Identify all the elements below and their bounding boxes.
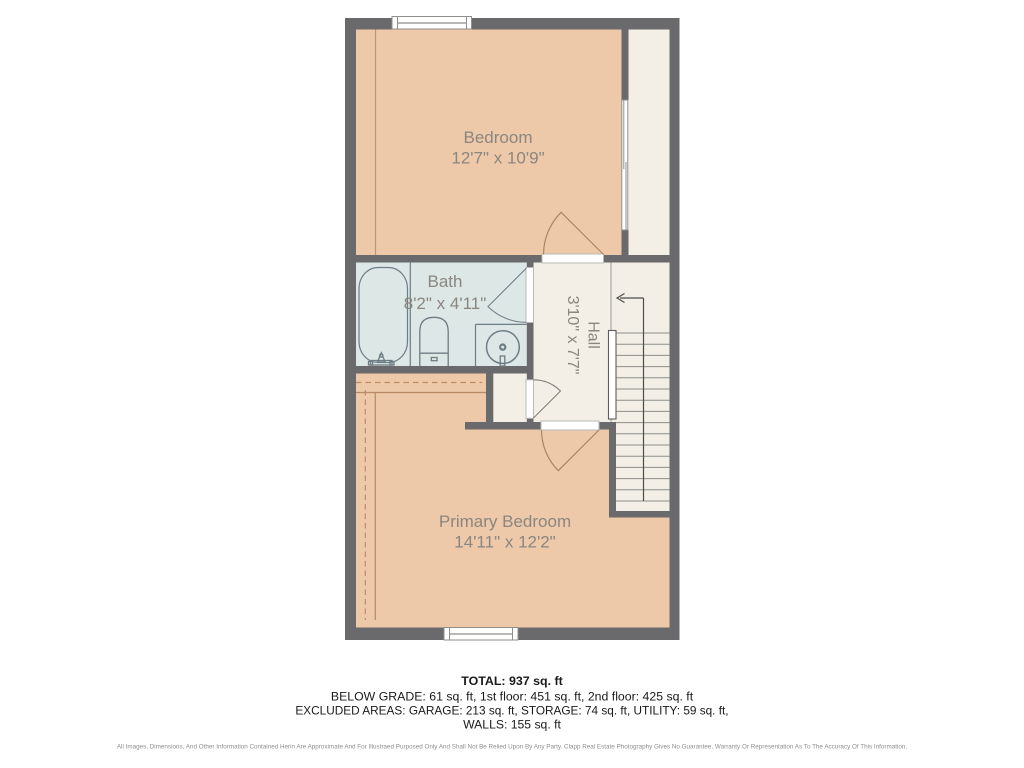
svg-text:WALLS: 155 sq. ft: WALLS: 155 sq. ft xyxy=(463,717,561,731)
svg-text:Bedroom: Bedroom xyxy=(464,128,533,147)
svg-text:3'10" x 7'7": 3'10" x 7'7" xyxy=(564,296,581,375)
svg-text:Primary Bedroom: Primary Bedroom xyxy=(439,512,571,531)
svg-text:12'7" x 10'9": 12'7" x 10'9" xyxy=(451,149,544,168)
svg-text:8'2" x 4'11": 8'2" x 4'11" xyxy=(404,294,487,313)
svg-text:Bath: Bath xyxy=(428,272,463,291)
svg-text:14'11" x 12'2": 14'11" x 12'2" xyxy=(454,533,555,552)
svg-text:EXCLUDED AREAS: GARAGE: 213 sq: EXCLUDED AREAS: GARAGE: 213 sq. ft, STOR… xyxy=(295,704,728,718)
svg-text:All Images, Dimensions, And Ot: All Images, Dimensions, And Other Inform… xyxy=(117,744,908,751)
svg-text:BELOW GRADE: 61 sq. ft, 1st fl: BELOW GRADE: 61 sq. ft, 1st floor: 451 s… xyxy=(331,690,694,704)
svg-text:Hall: Hall xyxy=(585,321,602,349)
svg-text:TOTAL: 937 sq. ft: TOTAL: 937 sq. ft xyxy=(461,674,562,688)
